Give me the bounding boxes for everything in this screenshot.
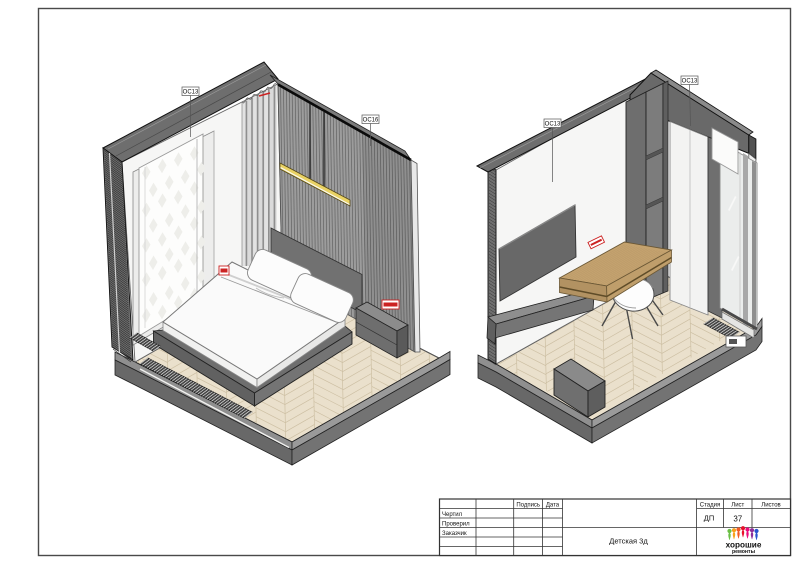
svg-text:Заказчик: Заказчик	[442, 531, 467, 537]
svg-text:Листов: Листов	[761, 502, 781, 508]
svg-text:Дата: Дата	[546, 502, 560, 508]
svg-text:ОС16: ОС16	[363, 118, 379, 124]
svg-text:Подпись: Подпись	[516, 502, 540, 508]
svg-text:Стадия: Стадия	[700, 502, 720, 508]
svg-text:Проверил: Проверил	[442, 521, 470, 527]
svg-text:ОС13: ОС13	[682, 79, 698, 85]
svg-text:37: 37	[733, 515, 742, 524]
svg-text:Лист: Лист	[731, 502, 744, 508]
svg-text:ремонты: ремонты	[732, 549, 756, 555]
svg-text:ОС13: ОС13	[545, 122, 561, 128]
svg-text:Чертил: Чертил	[442, 512, 463, 518]
svg-text:Детская 3д: Детская 3д	[609, 537, 648, 546]
svg-text:ДП: ДП	[704, 514, 714, 523]
svg-text:ОС13: ОС13	[183, 90, 199, 96]
